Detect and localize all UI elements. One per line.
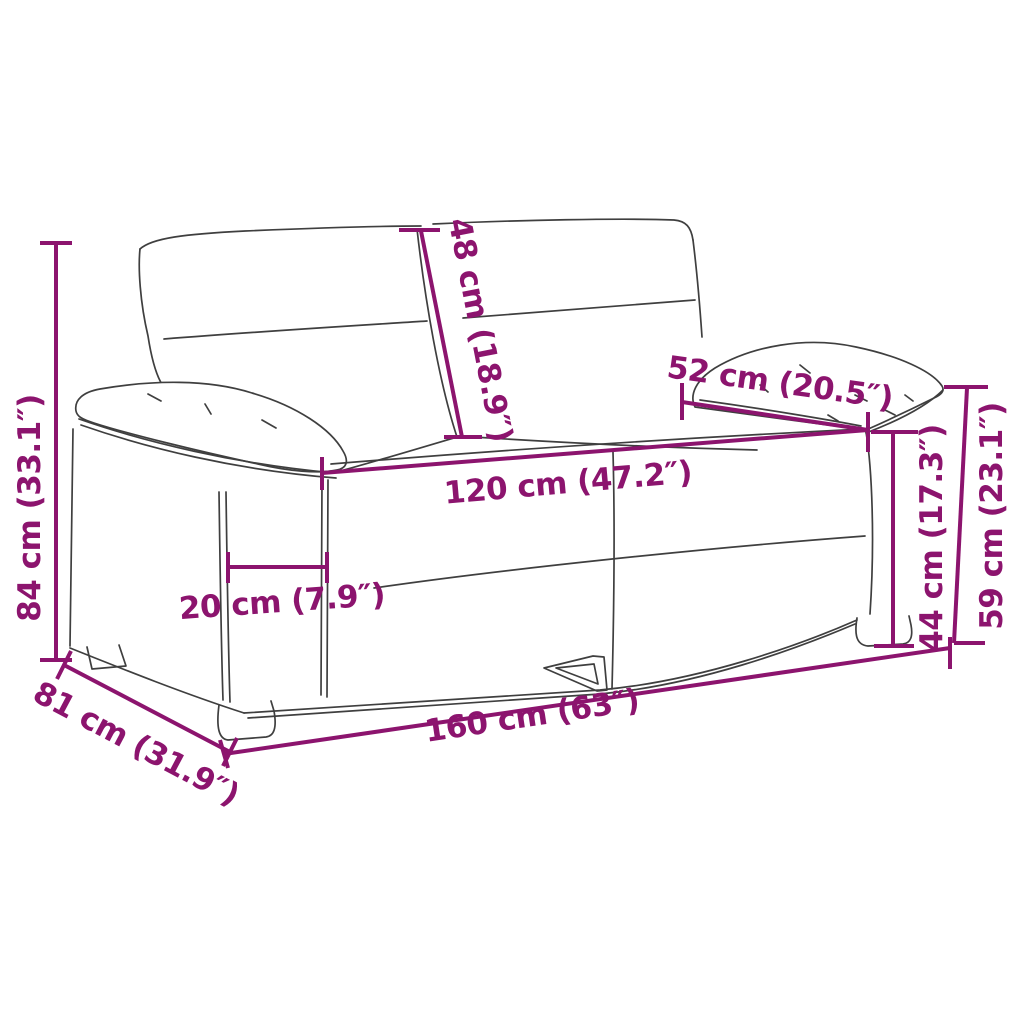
center-sled-foot-inner xyxy=(556,664,598,684)
dim-label-total-height: 84 cm (33.1″) xyxy=(12,394,48,622)
back-cushion-right-seam xyxy=(463,300,695,318)
back-cushion-left-seam xyxy=(164,321,427,339)
back-cushion-right-side-edge xyxy=(693,240,702,337)
center-sled-foot-outer xyxy=(544,656,607,691)
back-cushion-left-top-edge xyxy=(140,226,421,249)
right-foot xyxy=(856,616,912,646)
dim-seat-height-line xyxy=(871,432,918,646)
left-armrest-pillow xyxy=(76,382,347,471)
seat-front-top-edge xyxy=(331,429,864,464)
diagram-drawing xyxy=(0,0,1024,1024)
sofa-dimension-diagram: 84 cm (33.1″) 48 cm (18.9″) 52 cm (20.5″… xyxy=(0,0,1024,1024)
dim-label-arm-height: 59 cm (23.1″) xyxy=(974,402,1010,630)
dim-armrest-width-line xyxy=(228,552,327,583)
dim-label-seat-height: 44 cm (17.3″) xyxy=(914,424,950,652)
left-arm-outer-edge xyxy=(70,429,73,646)
back-cushion-left-side-edge xyxy=(139,249,163,386)
right-arm-front-edge xyxy=(866,432,873,614)
seat-front-seam xyxy=(374,536,865,588)
